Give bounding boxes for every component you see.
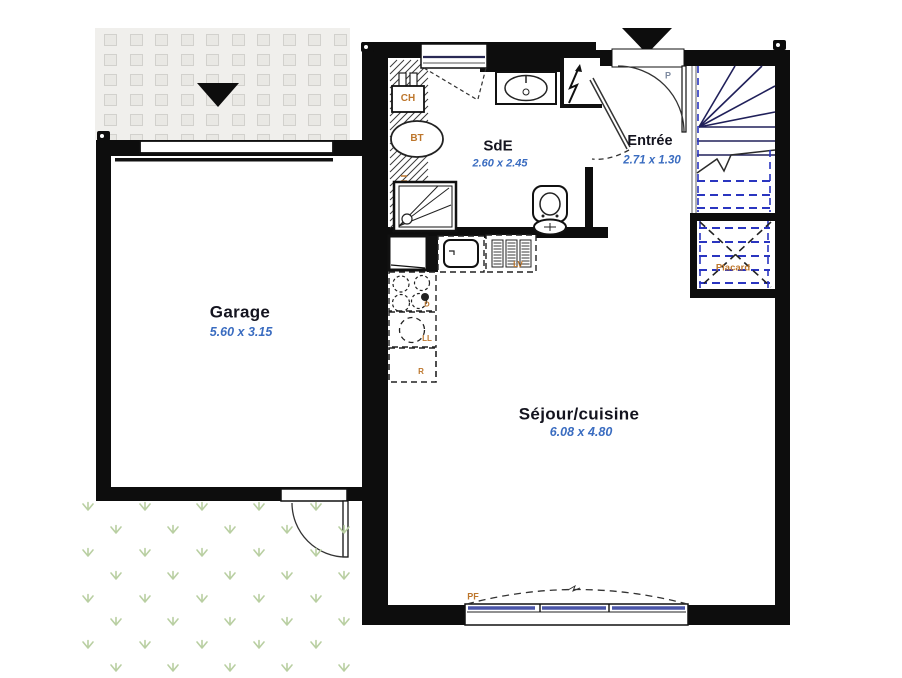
wall-garage-west bbox=[96, 140, 111, 501]
wall-house-south bbox=[362, 605, 790, 625]
kitchen-sink bbox=[438, 236, 484, 272]
technical-duct-hatching bbox=[390, 60, 428, 232]
fridge-r-label: R bbox=[418, 368, 424, 376]
fridge bbox=[389, 348, 436, 382]
wall-garage-north bbox=[96, 140, 362, 156]
floor-plan: Garage 5.60 x 3.15 SdE 2.60 x 2.45 Entré… bbox=[0, 0, 902, 678]
placard-closet bbox=[699, 221, 771, 288]
water-heater bbox=[391, 73, 443, 181]
wall-house-north-sde bbox=[362, 42, 588, 58]
wall-sde-south bbox=[362, 227, 608, 238]
shower bbox=[394, 182, 456, 231]
sde-dims: 2.60 x 2.45 bbox=[472, 159, 527, 170]
cooktop-d-label: D bbox=[424, 300, 429, 308]
wall-placard-south bbox=[690, 289, 775, 298]
downspout-icon bbox=[773, 40, 786, 50]
water-heater-ch-label: CH bbox=[401, 94, 415, 104]
washing-machine-ll-label: LL bbox=[422, 335, 432, 343]
downspout-icon bbox=[361, 42, 374, 52]
wall-sde-east bbox=[585, 167, 593, 227]
wall-house-east bbox=[775, 50, 790, 625]
sde-label: SdE bbox=[483, 139, 512, 154]
sde-door bbox=[590, 78, 630, 159]
downspout-icon bbox=[97, 131, 110, 141]
sejour-dims: 6.08 x 4.80 bbox=[550, 426, 613, 439]
pf-window-label: PF bbox=[467, 593, 479, 602]
wall-house-west bbox=[362, 42, 388, 625]
sejour-label: Séjour/cuisine bbox=[519, 406, 639, 423]
dishwasher-lv-label: LV bbox=[513, 261, 523, 269]
wall-placard-north bbox=[690, 213, 775, 221]
washbasin bbox=[496, 72, 556, 104]
entree-dims: 2.71 x 1.30 bbox=[623, 155, 681, 167]
garage-label: Garage bbox=[210, 304, 270, 321]
grass-area bbox=[83, 503, 349, 672]
staircase bbox=[692, 66, 775, 213]
wall-garage-south bbox=[96, 487, 388, 501]
entree-label: Entrée bbox=[627, 134, 672, 149]
wall-washbasin-nook bbox=[480, 58, 564, 72]
driveway-entrance-arrow-icon bbox=[197, 83, 239, 107]
entrance-door-p-label: P bbox=[665, 72, 671, 81]
dishwasher bbox=[486, 235, 536, 272]
kitchen-cabinet bbox=[389, 236, 438, 272]
wall-house-north-entree bbox=[586, 50, 790, 66]
garage-dims: 5.60 x 3.15 bbox=[210, 326, 273, 339]
water-tank-bt-label: BT bbox=[410, 134, 423, 144]
wall-placard-west bbox=[690, 213, 697, 297]
placard-label: Placard bbox=[716, 263, 750, 273]
